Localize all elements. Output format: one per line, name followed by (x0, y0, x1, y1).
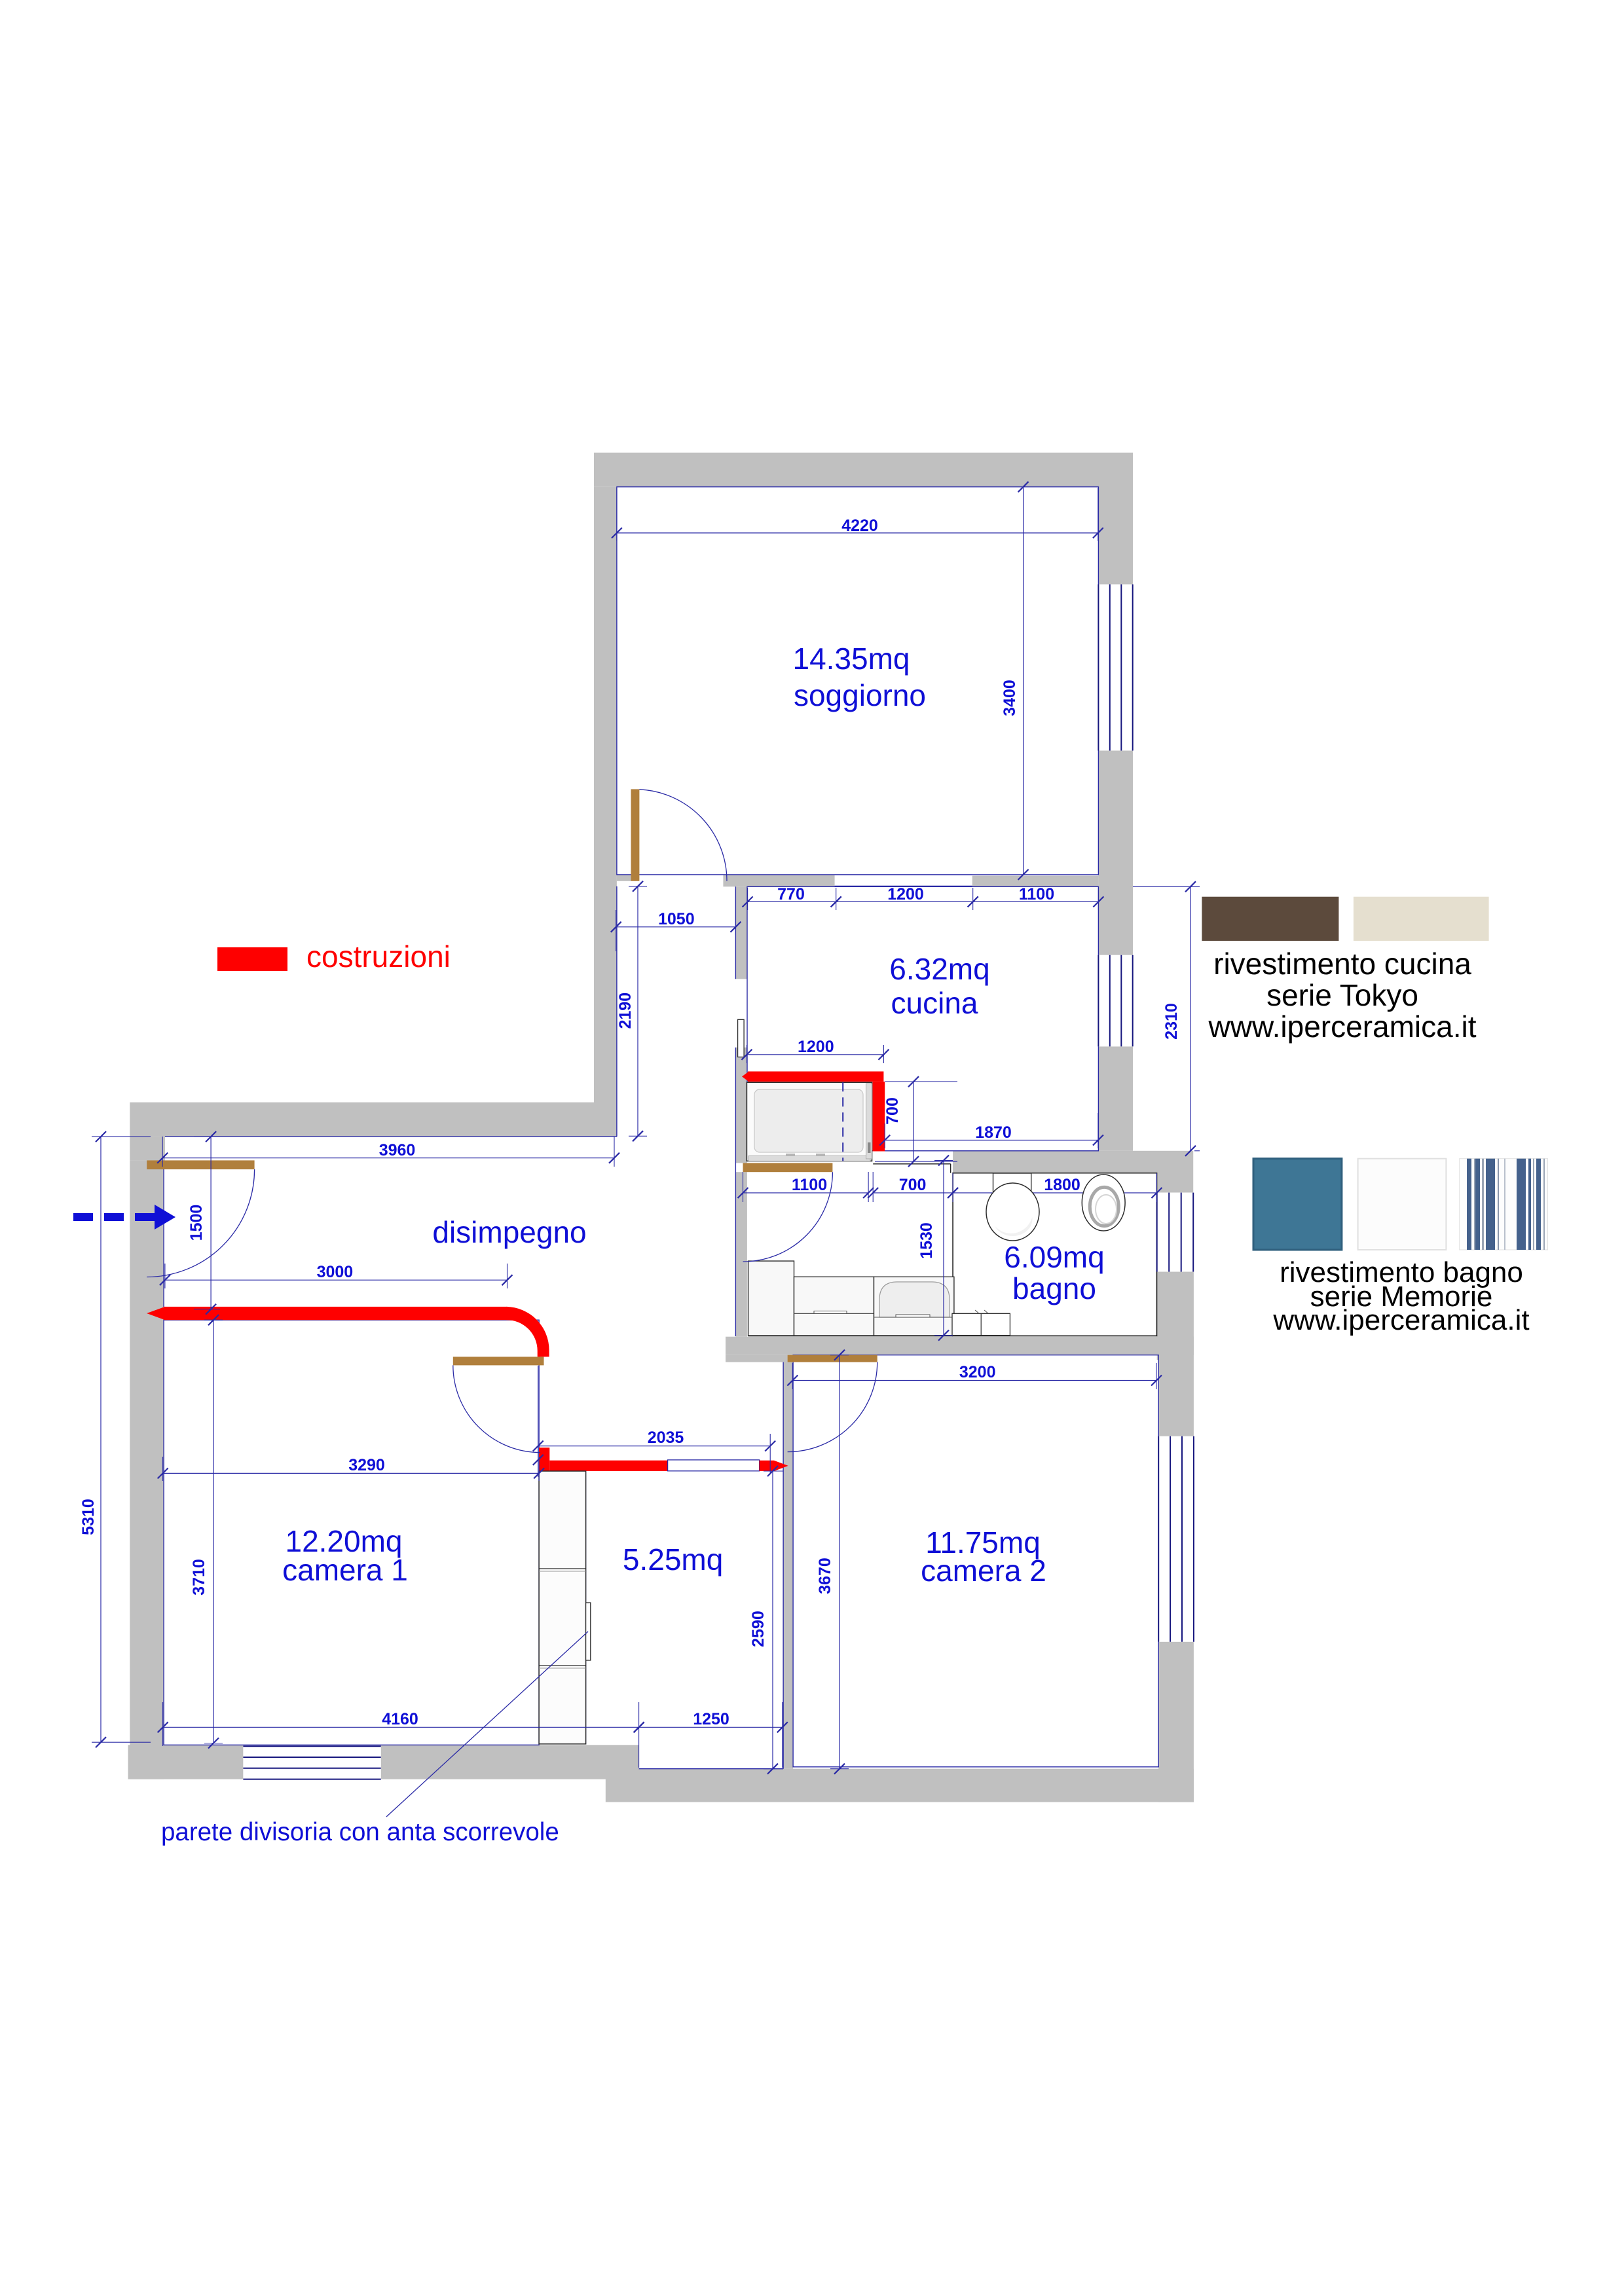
svg-text:bagno: bagno (1012, 1271, 1096, 1305)
svg-text:5.25mq: 5.25mq (623, 1542, 723, 1576)
svg-text:5310: 5310 (79, 1499, 98, 1535)
svg-text:3200: 3200 (959, 1363, 996, 1381)
svg-text:soggiorno: soggiorno (794, 678, 926, 712)
svg-text:disimpegno: disimpegno (432, 1215, 586, 1249)
svg-text:14.35mq: 14.35mq (792, 642, 910, 676)
svg-text:770: 770 (777, 885, 805, 903)
svg-text:2035: 2035 (648, 1429, 684, 1447)
svg-text:3000: 3000 (317, 1263, 354, 1281)
svg-text:6.09mq: 6.09mq (1004, 1240, 1104, 1274)
svg-text:camera 2: camera 2 (921, 1554, 1046, 1588)
svg-text:3710: 3710 (190, 1559, 208, 1595)
svg-text:700: 700 (899, 1176, 927, 1194)
svg-text:4220: 4220 (841, 517, 878, 535)
svg-text:www.iperceramica.it: www.iperceramica.it (1272, 1304, 1529, 1336)
svg-text:2590: 2590 (749, 1611, 767, 1647)
svg-text:serie Tokyo: serie Tokyo (1266, 978, 1418, 1012)
svg-text:rivestimento cucina: rivestimento cucina (1213, 947, 1471, 981)
svg-text:3670: 3670 (816, 1558, 834, 1594)
svg-text:1200: 1200 (887, 885, 924, 903)
svg-text:1050: 1050 (658, 910, 695, 928)
svg-text:1800: 1800 (1044, 1176, 1080, 1194)
svg-text:cucina: cucina (891, 986, 978, 1020)
svg-text:3960: 3960 (379, 1141, 416, 1159)
svg-text:camera 1: camera 1 (282, 1553, 408, 1587)
svg-text:3400: 3400 (1001, 680, 1019, 716)
svg-text:1530: 1530 (917, 1222, 936, 1259)
svg-text:3290: 3290 (348, 1456, 385, 1474)
svg-text:4160: 4160 (382, 1710, 418, 1728)
svg-text:700: 700 (883, 1097, 902, 1125)
svg-text:2190: 2190 (616, 993, 635, 1029)
svg-text:1500: 1500 (187, 1205, 206, 1241)
svg-text:1100: 1100 (1019, 885, 1054, 903)
svg-text:1200: 1200 (798, 1038, 834, 1056)
svg-text:6.32mq: 6.32mq (889, 952, 989, 986)
svg-text:www.iperceramica.it: www.iperceramica.it (1208, 1010, 1477, 1044)
svg-text:1870: 1870 (975, 1123, 1012, 1142)
svg-text:1100: 1100 (792, 1176, 827, 1194)
svg-text:2310: 2310 (1162, 1003, 1181, 1040)
svg-text:parete divisoria con anta scor: parete divisoria con anta scorrevole (161, 1818, 559, 1846)
svg-text:costruzioni: costruzioni (306, 939, 451, 974)
svg-text:1250: 1250 (693, 1710, 729, 1728)
